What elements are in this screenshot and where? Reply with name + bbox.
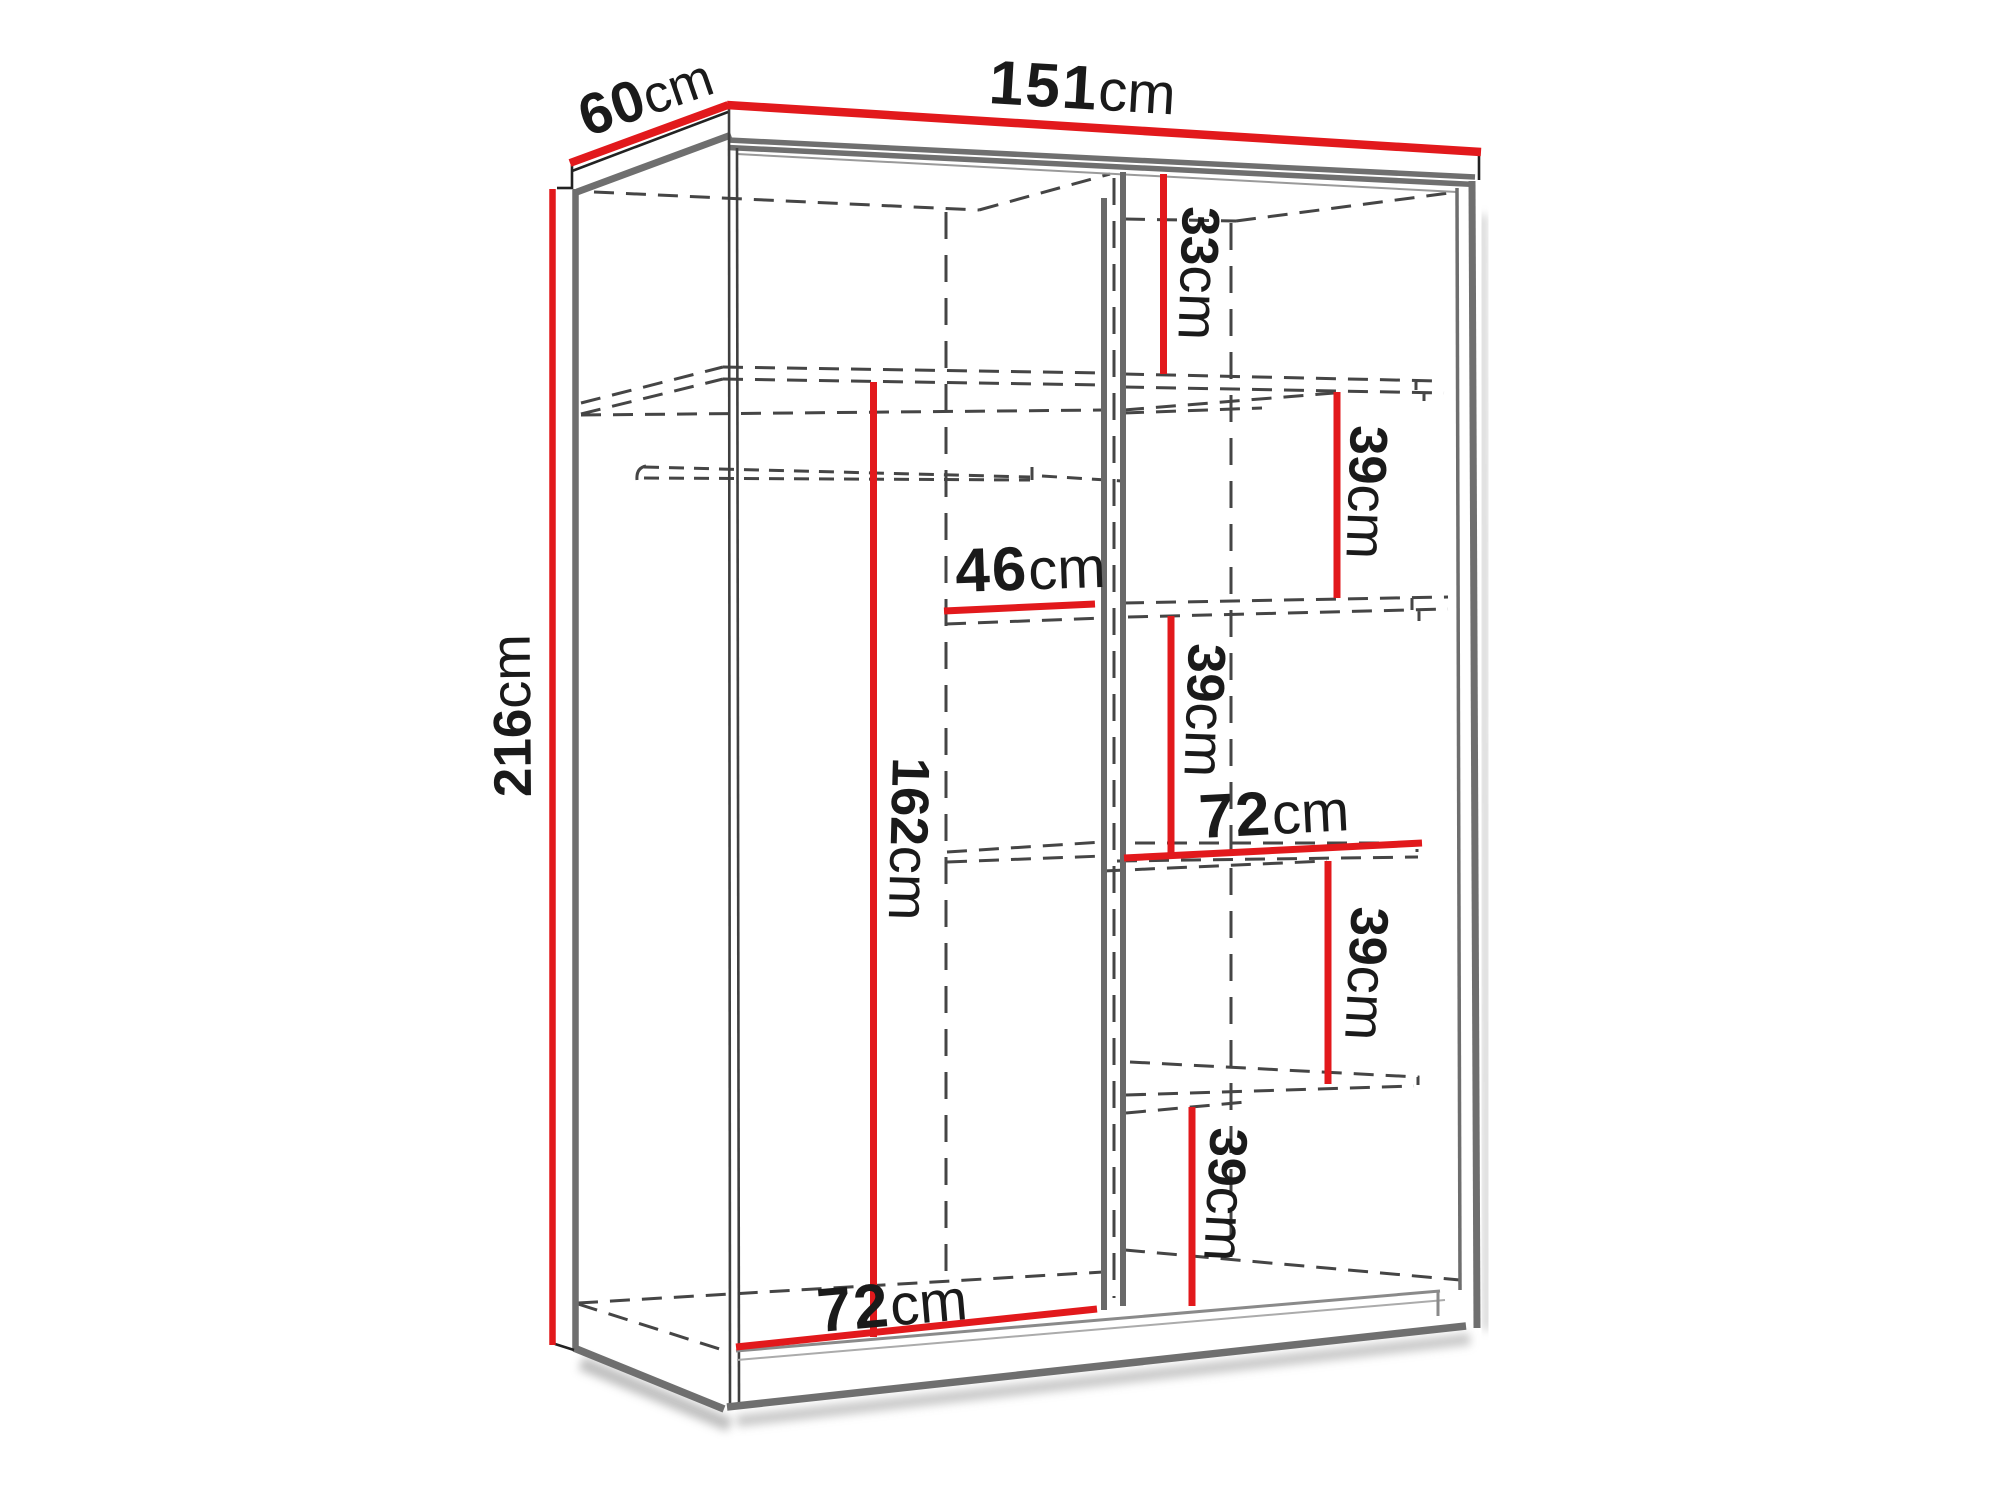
svg-text:162cm: 162cm	[877, 757, 944, 922]
svg-text:39cm: 39cm	[1172, 643, 1240, 779]
svg-text:33cm: 33cm	[1166, 206, 1234, 342]
svg-text:72cm: 72cm	[1197, 775, 1351, 852]
svg-text:46cm: 46cm	[954, 532, 1107, 606]
svg-text:216cm: 216cm	[479, 634, 543, 798]
svg-text:39cm: 39cm	[1333, 905, 1403, 1042]
svg-text:72cm: 72cm	[814, 1264, 970, 1346]
svg-text:39cm: 39cm	[1334, 425, 1402, 561]
svg-text:151cm: 151cm	[987, 48, 1178, 128]
svg-text:39cm: 39cm	[1192, 1126, 1262, 1263]
